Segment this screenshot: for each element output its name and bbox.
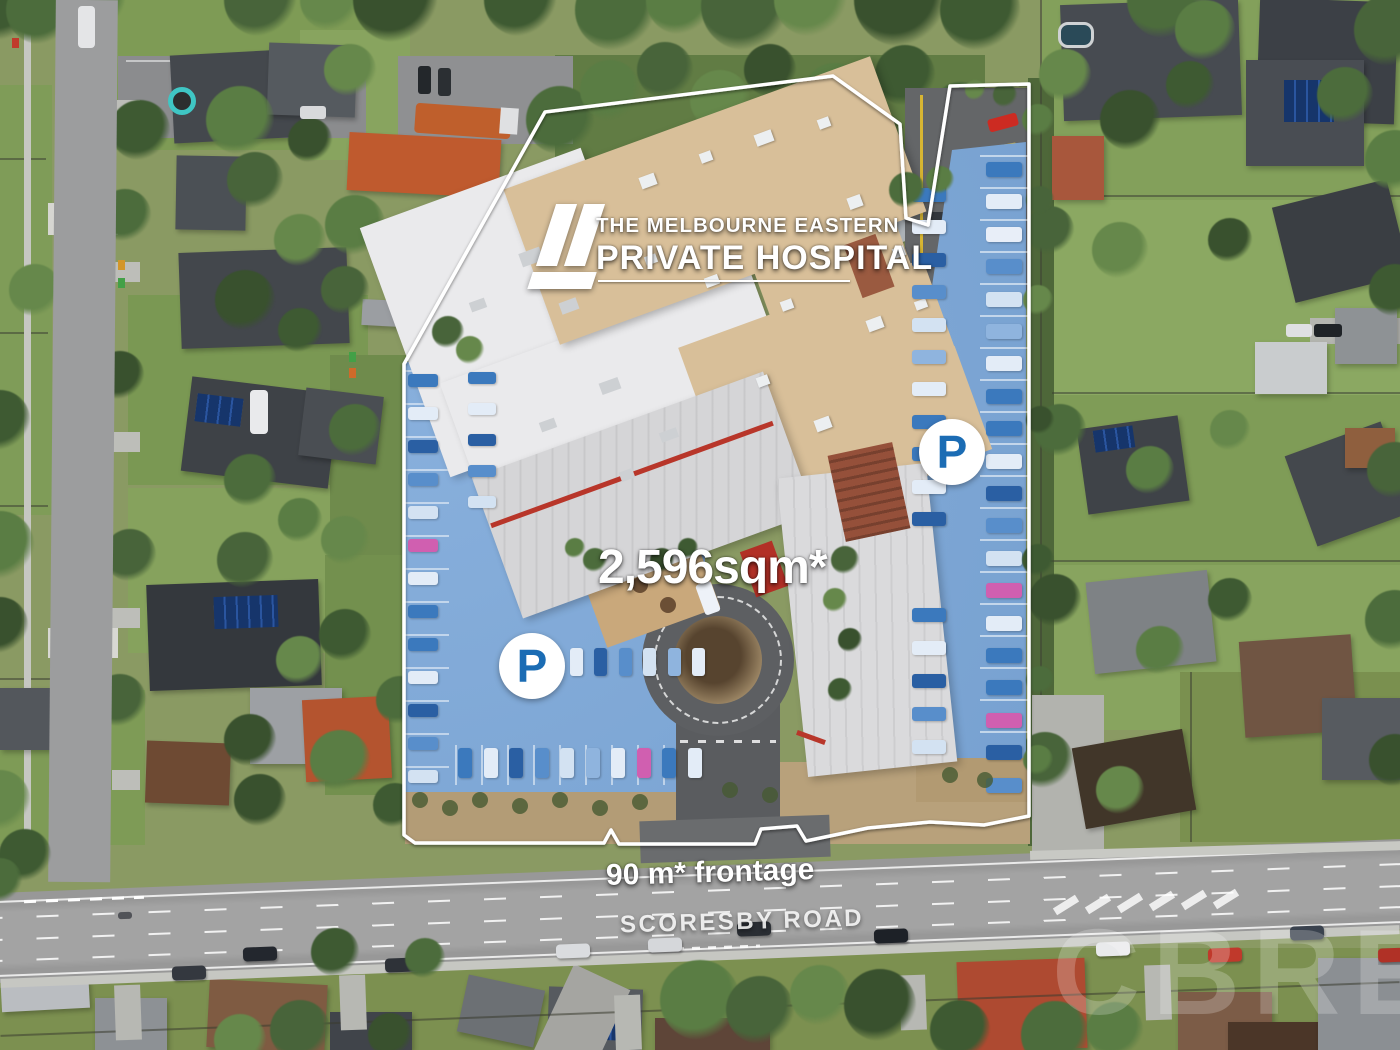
car <box>408 539 438 552</box>
tree <box>1208 578 1252 622</box>
van <box>78 6 95 48</box>
cbre-watermark: CBRE <box>1052 902 1400 1042</box>
car <box>912 608 946 622</box>
tree <box>565 538 585 558</box>
aerial-photo-decor <box>0 0 1400 1050</box>
car <box>912 641 946 655</box>
car <box>986 680 1022 695</box>
car <box>408 737 438 750</box>
shrub <box>412 792 428 808</box>
car <box>300 106 326 119</box>
shrub <box>512 798 528 814</box>
tree <box>1126 446 1174 494</box>
tree <box>774 0 846 36</box>
tree <box>234 774 286 826</box>
house-roof <box>1052 136 1104 200</box>
car <box>986 389 1022 404</box>
tree <box>854 0 946 46</box>
car <box>986 518 1022 533</box>
shrub <box>632 794 648 810</box>
tree <box>1166 61 1214 109</box>
tree <box>844 969 916 1041</box>
car <box>688 748 702 778</box>
tree <box>368 1013 412 1050</box>
car <box>986 648 1022 663</box>
tree <box>1023 745 1053 775</box>
tree <box>1208 218 1252 262</box>
car <box>986 616 1022 631</box>
shrub <box>592 800 608 816</box>
car <box>408 770 438 783</box>
car <box>408 440 438 453</box>
car <box>986 583 1022 598</box>
car <box>484 748 498 778</box>
hospital-logo: THE MELBOURNE EASTERN PRIVATE HOSPITAL <box>524 192 1084 292</box>
tree <box>288 118 332 162</box>
car <box>611 748 625 778</box>
tree <box>278 308 322 352</box>
site-area-label: 2,596sqm* <box>598 540 827 595</box>
car <box>1286 324 1312 337</box>
car <box>986 162 1022 177</box>
car <box>643 648 656 676</box>
car <box>509 748 523 778</box>
wheelie-bin <box>349 352 356 362</box>
car <box>912 350 946 364</box>
car <box>986 421 1022 436</box>
car <box>986 486 1022 501</box>
logo-bar-icon <box>527 272 597 289</box>
car <box>986 356 1022 371</box>
tree <box>1096 766 1144 814</box>
tree <box>224 714 276 766</box>
car <box>438 68 451 96</box>
shrub <box>472 792 488 808</box>
tree <box>965 80 985 100</box>
tree <box>215 270 275 330</box>
car <box>619 648 632 676</box>
shrub <box>552 792 568 808</box>
driveway-stub <box>339 975 367 1031</box>
car <box>468 403 496 415</box>
car <box>986 454 1022 469</box>
tree <box>580 60 640 120</box>
tree <box>926 166 954 194</box>
tree <box>831 546 859 574</box>
tree <box>637 42 693 98</box>
car <box>648 937 682 952</box>
tree <box>405 938 445 978</box>
tree <box>1026 666 1054 694</box>
driveway-stub <box>614 995 642 1050</box>
driveway-stub <box>112 262 140 282</box>
tree <box>329 404 381 456</box>
car <box>468 372 496 384</box>
bus-cab <box>499 107 519 134</box>
house-roof <box>1335 308 1397 364</box>
tree <box>1136 626 1184 674</box>
shrub <box>977 772 993 788</box>
wheelie-bin <box>349 368 356 378</box>
car <box>418 66 431 94</box>
tree <box>310 730 370 790</box>
left-street <box>48 0 118 882</box>
tree <box>1175 0 1235 60</box>
tree <box>227 152 283 208</box>
pool <box>1058 22 1094 48</box>
tree <box>1022 104 1054 136</box>
driveway-stub <box>112 770 140 790</box>
tree <box>484 0 556 36</box>
car <box>986 713 1022 728</box>
hospital-logo-text: THE MELBOURNE EASTERN PRIVATE HOSPITAL <box>596 214 933 278</box>
car <box>1314 324 1342 337</box>
motorcycle <box>118 912 132 919</box>
tree <box>1039 49 1091 101</box>
solar-panels <box>213 595 278 629</box>
parking-p-icon: P <box>517 643 548 689</box>
tree <box>993 83 1017 107</box>
driveway-stub <box>112 432 140 452</box>
car <box>986 551 1022 566</box>
planter <box>660 597 676 613</box>
logo-underline <box>598 280 850 282</box>
wheelie-bin <box>12 38 19 48</box>
tree <box>838 628 862 652</box>
tree <box>790 965 850 1025</box>
tree <box>1100 90 1160 150</box>
tree <box>575 0 655 50</box>
tree <box>324 44 376 96</box>
tree <box>217 532 273 588</box>
car <box>408 605 438 618</box>
car <box>986 324 1022 339</box>
tree <box>1092 222 1148 278</box>
tree <box>321 266 369 314</box>
car <box>243 946 277 961</box>
car <box>986 745 1022 760</box>
van <box>250 390 268 434</box>
tree <box>726 976 794 1044</box>
car <box>468 465 496 477</box>
car <box>912 740 946 754</box>
car <box>408 671 438 684</box>
tree <box>206 86 274 154</box>
tree <box>1210 410 1250 450</box>
car <box>874 928 908 943</box>
car <box>408 638 438 651</box>
car <box>408 473 438 486</box>
tree <box>1022 544 1054 576</box>
car <box>637 748 651 778</box>
car <box>408 407 438 420</box>
frontage-label: 90 m* frontage <box>606 853 815 893</box>
parking-p-icon: P <box>937 429 968 475</box>
trampoline <box>168 87 196 115</box>
fence-line <box>1052 392 1400 394</box>
car <box>408 374 438 387</box>
fence-line <box>0 158 46 160</box>
shrub <box>722 782 738 798</box>
giveway-dashes <box>680 740 776 743</box>
tree <box>276 636 324 684</box>
car <box>594 648 607 676</box>
aerial-site-photo: THE MELBOURNE EASTERN PRIVATE HOSPITAL 2… <box>0 0 1400 1050</box>
car <box>692 648 705 676</box>
car <box>912 382 946 396</box>
car <box>468 434 496 446</box>
car <box>986 292 1022 307</box>
tree <box>1026 406 1054 434</box>
tree <box>828 678 852 702</box>
tree <box>456 336 484 364</box>
hospital-name-line2: PRIVATE HOSPITAL <box>596 239 933 278</box>
solar-panels <box>194 393 243 426</box>
car <box>560 748 574 778</box>
car <box>556 943 590 958</box>
car <box>662 748 676 778</box>
tree <box>278 498 322 542</box>
shrub <box>762 787 778 803</box>
parking-badge-right: P <box>919 419 985 485</box>
tree <box>321 516 369 564</box>
wheelie-bin <box>118 278 125 288</box>
hospital-name-line1: THE MELBOURNE EASTERN <box>596 214 933 238</box>
car <box>408 704 438 717</box>
tree <box>319 609 371 661</box>
car <box>912 318 946 332</box>
car <box>408 506 438 519</box>
house-roof <box>145 741 231 806</box>
shrub <box>442 800 458 816</box>
car <box>468 496 496 508</box>
driveway-stub <box>112 608 140 628</box>
car <box>668 648 681 676</box>
tree <box>940 0 1020 50</box>
parking-badge-left: P <box>499 633 565 699</box>
tree <box>1317 67 1373 123</box>
car <box>458 748 472 778</box>
fence-line <box>1050 560 1400 562</box>
car <box>570 648 583 676</box>
car <box>912 707 946 721</box>
house-roof <box>1255 342 1327 394</box>
car <box>408 572 438 585</box>
car <box>172 965 206 980</box>
tree <box>224 454 276 506</box>
tree <box>274 214 326 266</box>
car <box>586 748 600 778</box>
driveway-stub <box>114 985 142 1041</box>
car <box>912 512 946 526</box>
tree <box>110 100 170 160</box>
car <box>535 748 549 778</box>
wheelie-bin <box>118 260 125 270</box>
shrub <box>942 767 958 783</box>
roundabout-island <box>674 616 762 704</box>
fence-line <box>1190 672 1192 842</box>
tree <box>311 928 359 976</box>
tree <box>1029 574 1081 626</box>
car <box>912 674 946 688</box>
